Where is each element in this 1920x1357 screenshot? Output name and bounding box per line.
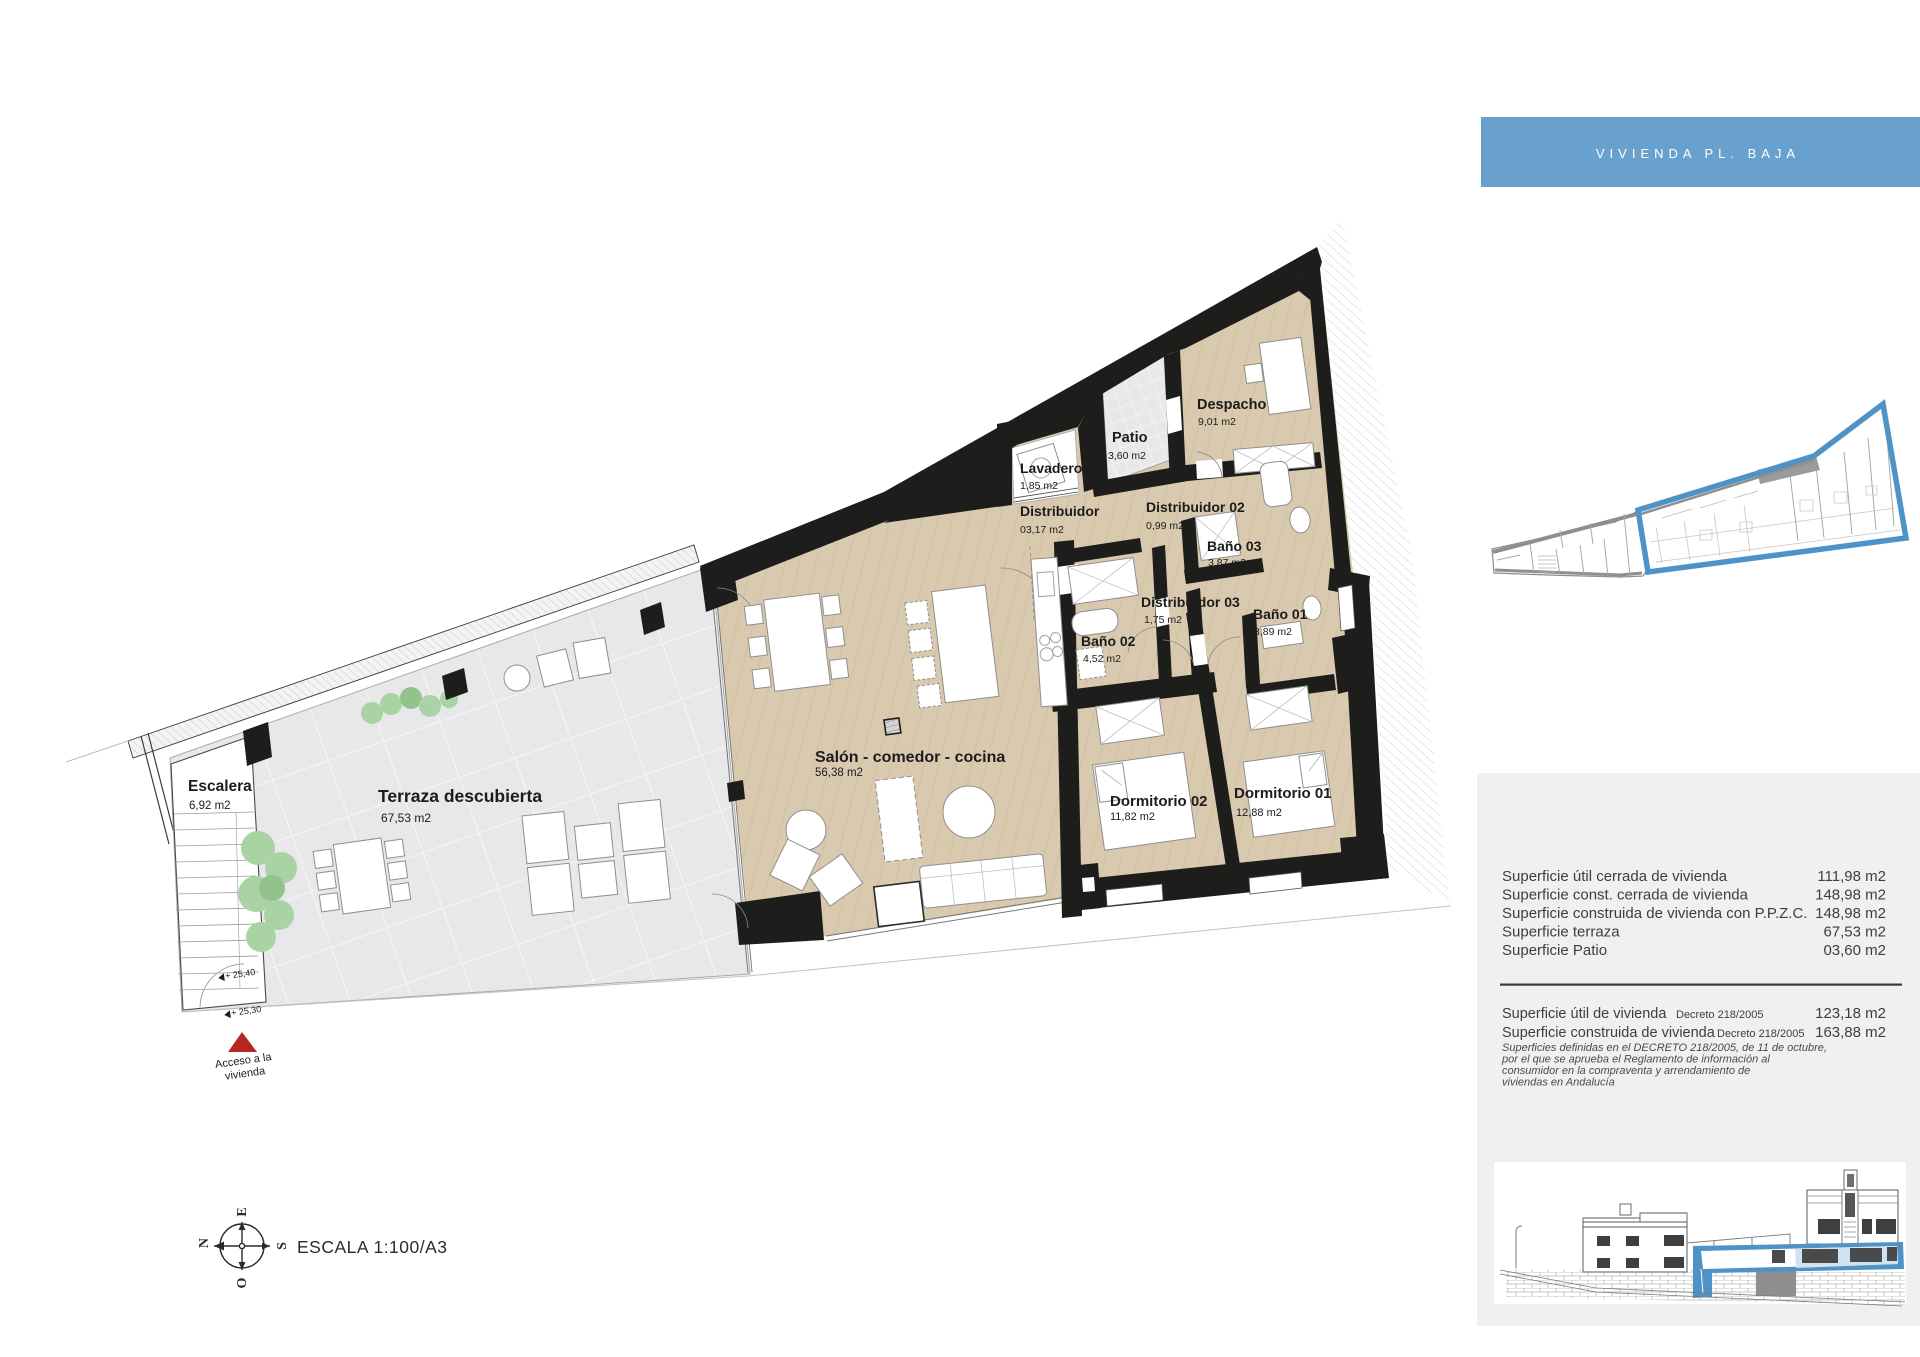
svg-text:Terraza descubierta: Terraza descubierta [378, 786, 542, 806]
svg-text:Superficie const. cerrada de v: Superficie const. cerrada de vivienda [1502, 887, 1749, 904]
svg-text:56,38 m2: 56,38 m2 [815, 767, 863, 779]
svg-text:3,60 m2: 3,60 m2 [1108, 450, 1146, 462]
svg-text:Superficie útil cerrada de viv: Superficie útil cerrada de vivienda [1502, 868, 1728, 885]
svg-text:E: E [235, 1207, 250, 1216]
svg-text:Despacho: Despacho [1197, 397, 1266, 413]
svg-text:Superficies definidas en el DE: Superficies definidas en el DECRETO 218/… [1502, 1042, 1827, 1054]
svg-text:Dormitorio 02: Dormitorio 02 [1110, 793, 1208, 810]
svg-text:Baño 02: Baño 02 [1081, 633, 1136, 649]
svg-text:123,18 m2: 123,18 m2 [1815, 1005, 1886, 1022]
svg-text:6,92 m2: 6,92 m2 [189, 800, 231, 812]
svg-text:Escalera: Escalera [188, 778, 252, 795]
svg-text:Distribuidor 02: Distribuidor 02 [1146, 499, 1245, 515]
svg-text:12,88 m2: 12,88 m2 [1236, 807, 1282, 819]
svg-text:67,53 m2: 67,53 m2 [1823, 924, 1886, 941]
svg-text:1,85 m2: 1,85 m2 [1020, 480, 1058, 492]
svg-text:Baño 03: Baño 03 [1207, 538, 1262, 554]
svg-text:Superficie construida de vivie: Superficie construida de vivienda [1502, 1025, 1716, 1041]
svg-text:O: O [235, 1277, 250, 1288]
svg-text:67,53 m2: 67,53 m2 [381, 811, 431, 825]
svg-text:viviendas en Andalucía: viviendas en Andalucía [1502, 1077, 1615, 1089]
svg-text:VIVIENDA PL. BAJA: VIVIENDA PL. BAJA [1596, 146, 1800, 161]
svg-text:111,98 m2: 111,98 m2 [1817, 868, 1886, 885]
svg-text:S: S [275, 1242, 290, 1250]
svg-text:Distribuidor: Distribuidor [1020, 503, 1100, 519]
svg-text:3,89 m2: 3,89 m2 [1254, 626, 1292, 638]
svg-text:consumidor en la compraventa y: consumidor en la compraventa y arrendami… [1502, 1065, 1750, 1077]
svg-text:Superficie terraza: Superficie terraza [1502, 924, 1620, 941]
svg-text:ESCALA 1:100/A3: ESCALA 1:100/A3 [297, 1237, 448, 1257]
svg-text:Superficie construida de vivie: Superficie construida de vivienda con P.… [1502, 905, 1807, 922]
svg-text:Salón - comedor - cocina: Salón - comedor - cocina [815, 749, 1005, 766]
svg-text:148,98 m2: 148,98 m2 [1815, 905, 1886, 922]
svg-text:Superficie útil de vivienda: Superficie útil de vivienda [1502, 1006, 1667, 1022]
svg-text:9,01 m2: 9,01 m2 [1198, 416, 1236, 428]
svg-text:03,60 m2: 03,60 m2 [1823, 942, 1886, 959]
svg-text:Lavadero: Lavadero [1020, 460, 1082, 476]
svg-text:Superficie Patio: Superficie Patio [1502, 942, 1607, 959]
svg-text:148,98 m2: 148,98 m2 [1815, 887, 1886, 904]
svg-text:0,99 m2: 0,99 m2 [1146, 520, 1184, 532]
svg-text:1,75 m2: 1,75 m2 [1144, 614, 1182, 626]
svg-text:N: N [197, 1238, 212, 1248]
svg-text:por el que se aprueba el Regla: por el que se aprueba el Reglamento de i… [1501, 1054, 1770, 1066]
svg-text:Distribuidor 03: Distribuidor 03 [1141, 594, 1240, 610]
svg-text:03,17 m2: 03,17 m2 [1020, 524, 1064, 536]
svg-text:Decreto 218/2005: Decreto 218/2005 [1717, 1028, 1804, 1040]
svg-text:Decreto 218/2005: Decreto 218/2005 [1676, 1009, 1763, 1021]
svg-text:4,52 m2: 4,52 m2 [1083, 653, 1121, 665]
svg-text:Baño 01: Baño 01 [1253, 606, 1308, 622]
svg-text:Dormitorio 01: Dormitorio 01 [1234, 785, 1332, 802]
svg-text:3,87 m2: 3,87 m2 [1208, 557, 1246, 569]
svg-text:Patio: Patio [1112, 430, 1148, 446]
svg-text:163,88 m2: 163,88 m2 [1815, 1024, 1886, 1041]
svg-text:11,82 m2: 11,82 m2 [1110, 811, 1155, 823]
